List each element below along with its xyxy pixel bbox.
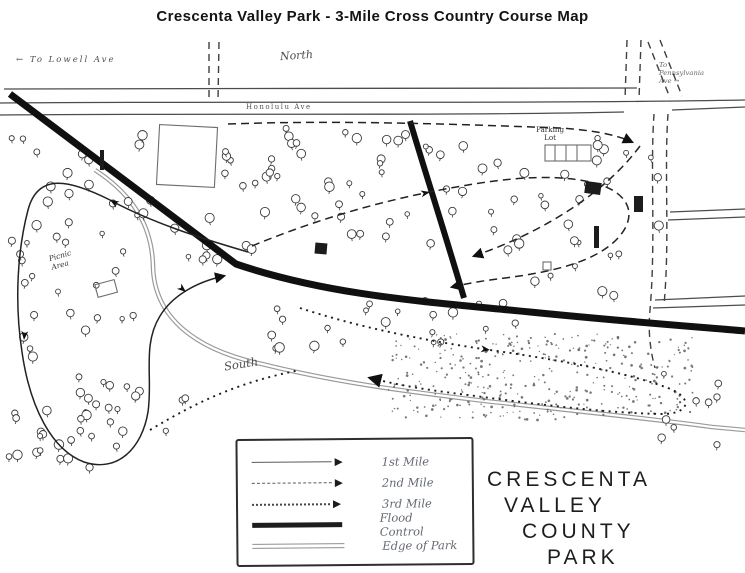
cross-street-right [625,40,627,100]
park-name-line: PARK [547,545,651,571]
label-north: North [280,49,314,64]
start-finish-marker [314,242,327,254]
flood-control-channel [10,94,745,331]
edge-of-park-line-icon [252,543,356,549]
legend-row-first-mile: 1st Mile [252,450,458,473]
picnic-shelter [95,280,118,298]
building-marker [634,196,643,212]
park-name-line: COUNTY [522,519,651,545]
flood-control-line-icon [252,522,354,528]
mile-post-marker [100,150,104,170]
legend-label: 1st Mile [382,454,430,468]
label-parking-lot: Parking Lot [536,126,564,143]
south-connector-trail [150,370,300,430]
ball-field [156,125,217,188]
legend-label: Edge of Park [382,538,457,553]
first-mile-line-icon [252,457,356,466]
park-name: CRESCENTA VALLEY COUNTY PARK [487,467,651,571]
legend-row-flood-control: Flood Control [252,513,458,536]
label-honolulu-ave: Honolulu Ave [246,103,312,111]
legend-row-second-mile: 2nd Mile [252,471,458,494]
third-mile-line-icon [252,499,356,508]
legend-row-edge-of-park: Edge of Park [252,534,458,557]
map-legend: 1st Mile 2nd Mile 3rd Mile Flood Control… [235,437,474,567]
park-name-line: CRESCENTA [487,467,651,493]
course-map-page: Crescenta Valley Park - 3-Mile Cross Cou… [0,0,745,573]
east-road [649,114,655,368]
mile-post-marker [594,226,599,248]
label-to-pennsylvania: To Pennsylvania Ave → [659,62,704,85]
park-name-line: VALLEY [504,493,651,519]
building-marker [584,181,602,195]
legend-label: 3rd Mile [382,496,432,510]
legend-label: 2nd Mile [382,475,434,489]
small-structure [543,262,551,270]
park-structures [95,125,643,298]
tree-symbols [6,125,721,473]
second-mile-trail [252,177,629,287]
legend-label: Flood Control [380,510,459,539]
first-mile-trail [18,183,248,464]
parking-lot-shape [545,145,591,161]
second-mile-line-icon [252,478,356,487]
label-to-lowell-ave: ← To Lowell Ave [16,56,116,66]
